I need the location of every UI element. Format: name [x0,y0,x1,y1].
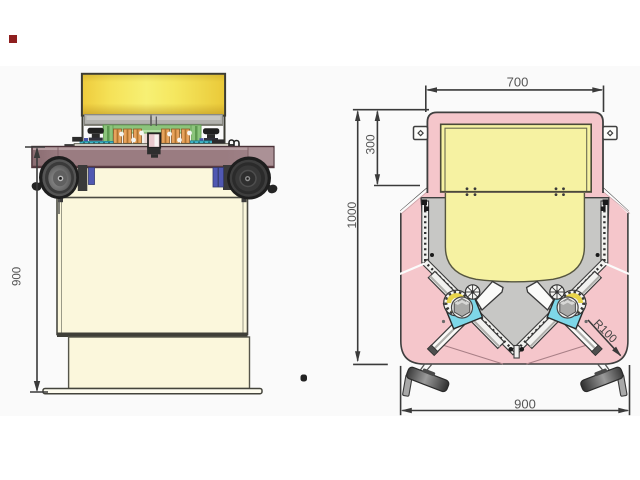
svg-text:700: 700 [507,75,529,90]
svg-text:300: 300 [364,134,378,154]
svg-text:1000: 1000 [345,201,359,228]
svg-text:900: 900 [12,267,24,286]
svg-text:900: 900 [514,397,536,412]
